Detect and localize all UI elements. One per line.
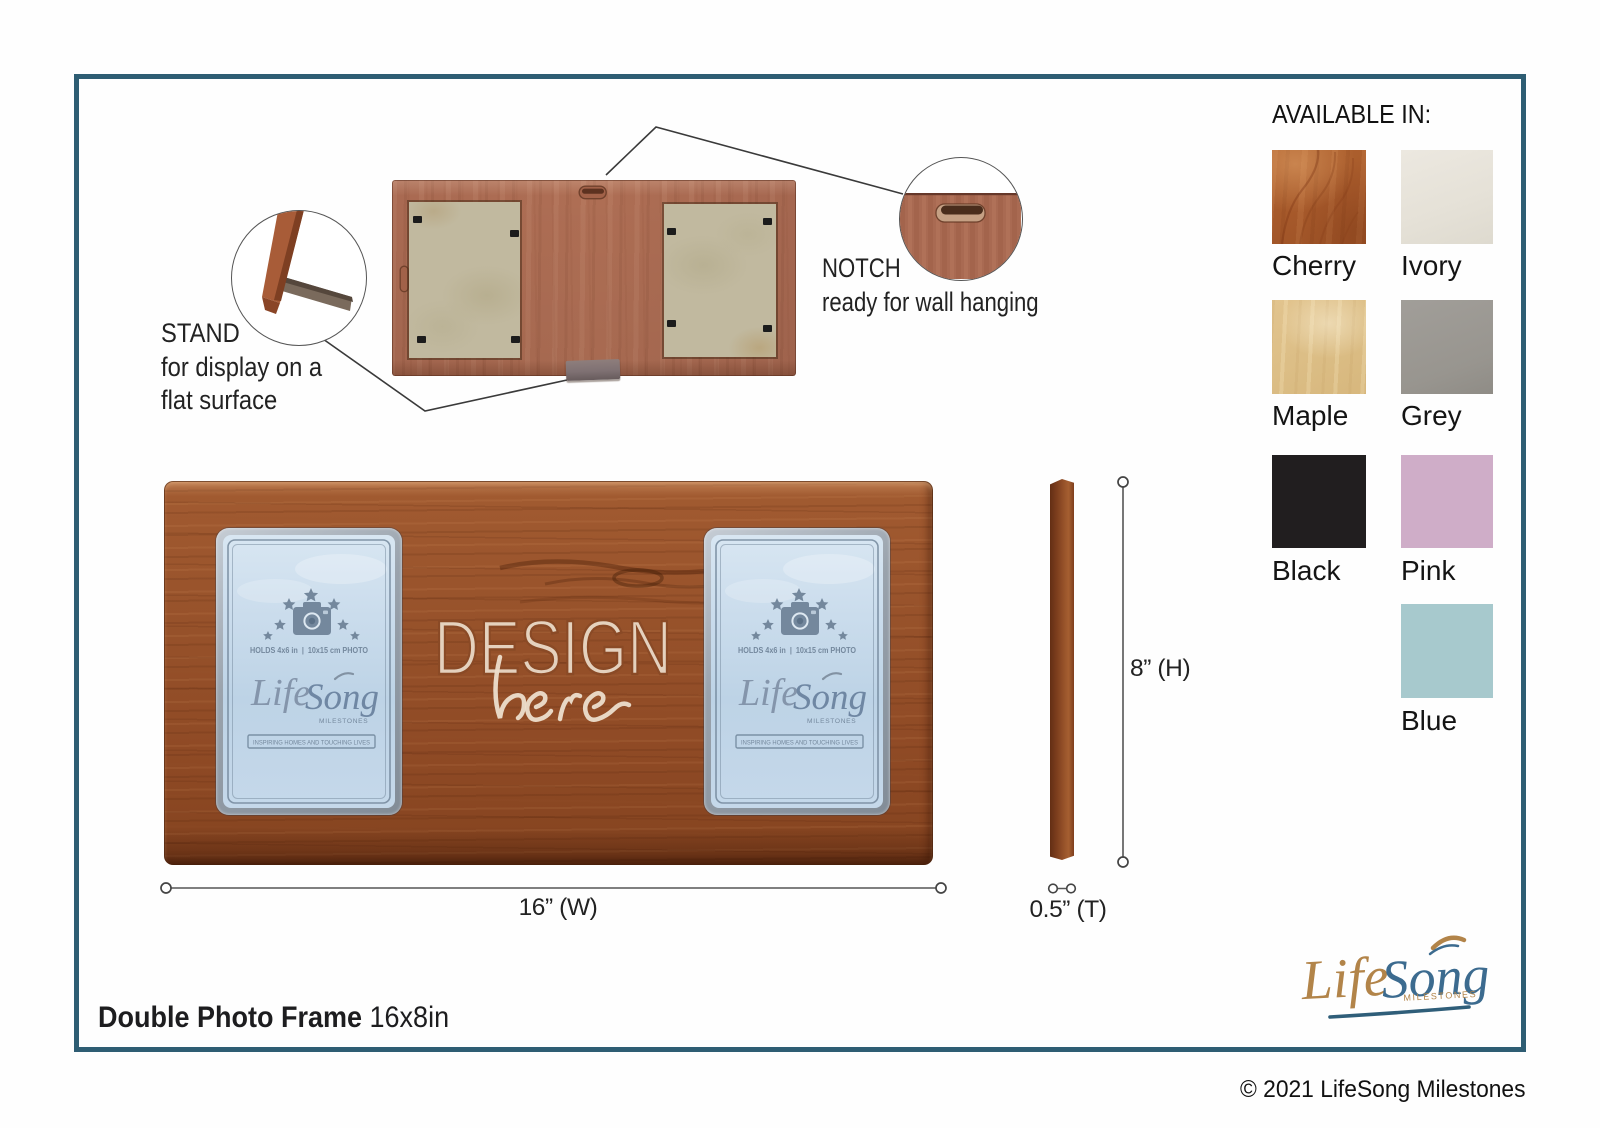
svg-text:INSPIRING HOMES AND TOUCHING L: INSPIRING HOMES AND TOUCHING LIVES <box>253 740 370 747</box>
svg-text:MILESTONES: MILESTONES <box>319 718 368 725</box>
svg-text:Song: Song <box>305 677 379 718</box>
svg-text:HOLDS 4x6 in | 10x15 cm PHOT: HOLDS 4x6 in | 10x15 cm PHOTO <box>250 645 368 655</box>
svg-text:Life: Life <box>1299 946 1390 1013</box>
svg-text:INSPIRING HOMES AND TOUCHING L: INSPIRING HOMES AND TOUCHING LIVES <box>741 740 858 747</box>
svg-text:HOLDS 4x6 in | 10x15 cm PHOT: HOLDS 4x6 in | 10x15 cm PHOTO <box>738 645 856 655</box>
svg-text:Song: Song <box>793 677 867 718</box>
svg-text:Life: Life <box>738 672 798 714</box>
svg-text:Life: Life <box>250 672 310 714</box>
svg-text:MILESTONES: MILESTONES <box>807 718 856 725</box>
